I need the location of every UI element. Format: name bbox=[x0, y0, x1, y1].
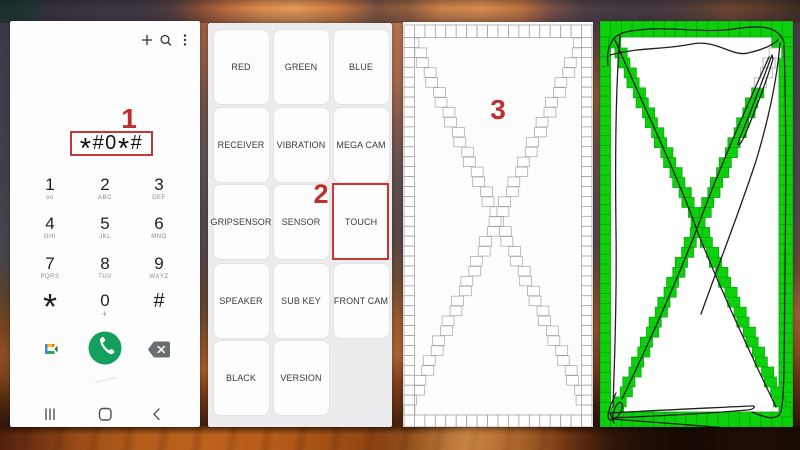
svg-text:3: 3 bbox=[490, 94, 506, 125]
